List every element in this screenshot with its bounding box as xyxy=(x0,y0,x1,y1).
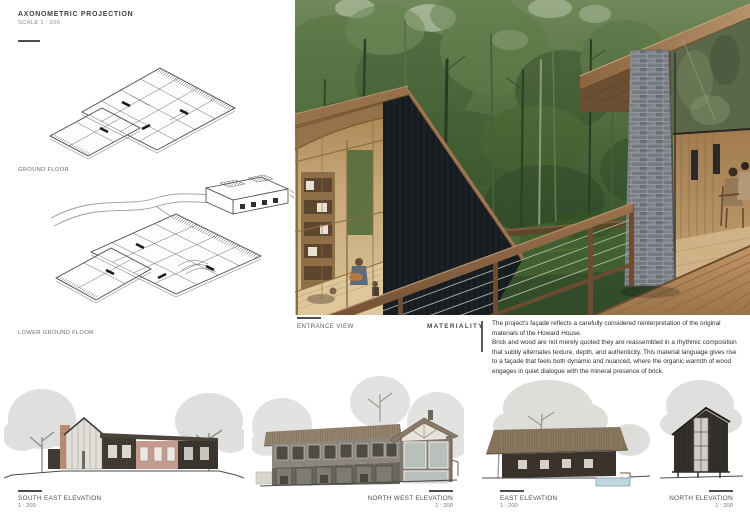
north-elevation-caption: NORTH ELEVATION 1 : 200 xyxy=(669,490,733,509)
south-east-elevation-caption: SOUTH EAST ELEVATION 1 : 200 xyxy=(18,490,101,509)
entrance-render-svg xyxy=(295,0,750,315)
scale-note: SCALE 1 : 200 xyxy=(18,20,133,26)
elevation-scale: 1 : 200 xyxy=(18,503,101,509)
ground-floor-label: GROUND FLOOR xyxy=(18,167,69,173)
elevation-scale: 1 : 200 xyxy=(500,503,557,509)
outbuilding-axon xyxy=(206,177,288,214)
south-east-elevation-svg xyxy=(4,381,244,493)
lower-ground-floor-label: LOWER GROUND FLOOR xyxy=(18,330,94,336)
caption-rule xyxy=(429,490,453,492)
north-west-elevation-caption: NORTH WEST ELEVATION 1 : 200 xyxy=(368,490,453,509)
elevation-label: SOUTH EAST ELEVATION xyxy=(18,495,101,502)
east-elevation-caption: EAST ELEVATION 1 : 200 xyxy=(500,490,557,509)
materiality-paragraph-2: Brick and wood are not merely quoted the… xyxy=(492,338,738,376)
ground-line xyxy=(660,476,743,478)
header-rule xyxy=(18,40,40,42)
entrance-render xyxy=(295,0,750,315)
north-elevation-svg xyxy=(648,374,748,490)
elevation-scale: 1 : 200 xyxy=(368,503,453,509)
materiality-divider xyxy=(481,321,483,352)
entrance-view-label: ENTRANCE VIEW xyxy=(297,323,354,330)
caption-rule xyxy=(18,490,42,492)
north-west-elevation-drawing xyxy=(252,374,464,490)
materiality-heading: MATERIALITY xyxy=(427,323,484,330)
ground-line xyxy=(4,471,244,478)
pool xyxy=(596,478,630,486)
page-title: AXONOMETRIC PROJECTION xyxy=(18,11,133,18)
caption-rule xyxy=(709,490,733,492)
north-west-elevation-svg xyxy=(252,374,464,490)
presentation-board: AXONOMETRIC PROJECTION SCALE 1 : 200 xyxy=(0,0,750,530)
materiality-paragraph-1: The project's façade reflects a carefull… xyxy=(492,319,738,338)
axo-header: AXONOMETRIC PROJECTION SCALE 1 : 200 xyxy=(18,11,133,42)
axonometric-lower-ground-drawing xyxy=(36,174,298,322)
axonometric-ground-floor-drawing xyxy=(30,50,240,168)
east-elevation-svg xyxy=(478,378,653,490)
entrance-rule xyxy=(297,317,321,319)
axonometric-ground-floor-svg xyxy=(30,50,240,168)
south-east-elevation-drawing xyxy=(4,381,244,493)
elevation-label: NORTH ELEVATION xyxy=(669,495,733,502)
east-elevation-drawing xyxy=(478,378,653,490)
axonometric-lower-ground-svg xyxy=(36,174,298,322)
north-elevation-drawing xyxy=(648,374,748,490)
caption-rule xyxy=(500,490,524,492)
materiality-text: The project's façade reflects a carefull… xyxy=(492,319,738,376)
elevation-label: EAST ELEVATION xyxy=(500,495,557,502)
elevation-scale: 1 : 200 xyxy=(669,503,733,509)
elevation-label: NORTH WEST ELEVATION xyxy=(368,495,453,502)
